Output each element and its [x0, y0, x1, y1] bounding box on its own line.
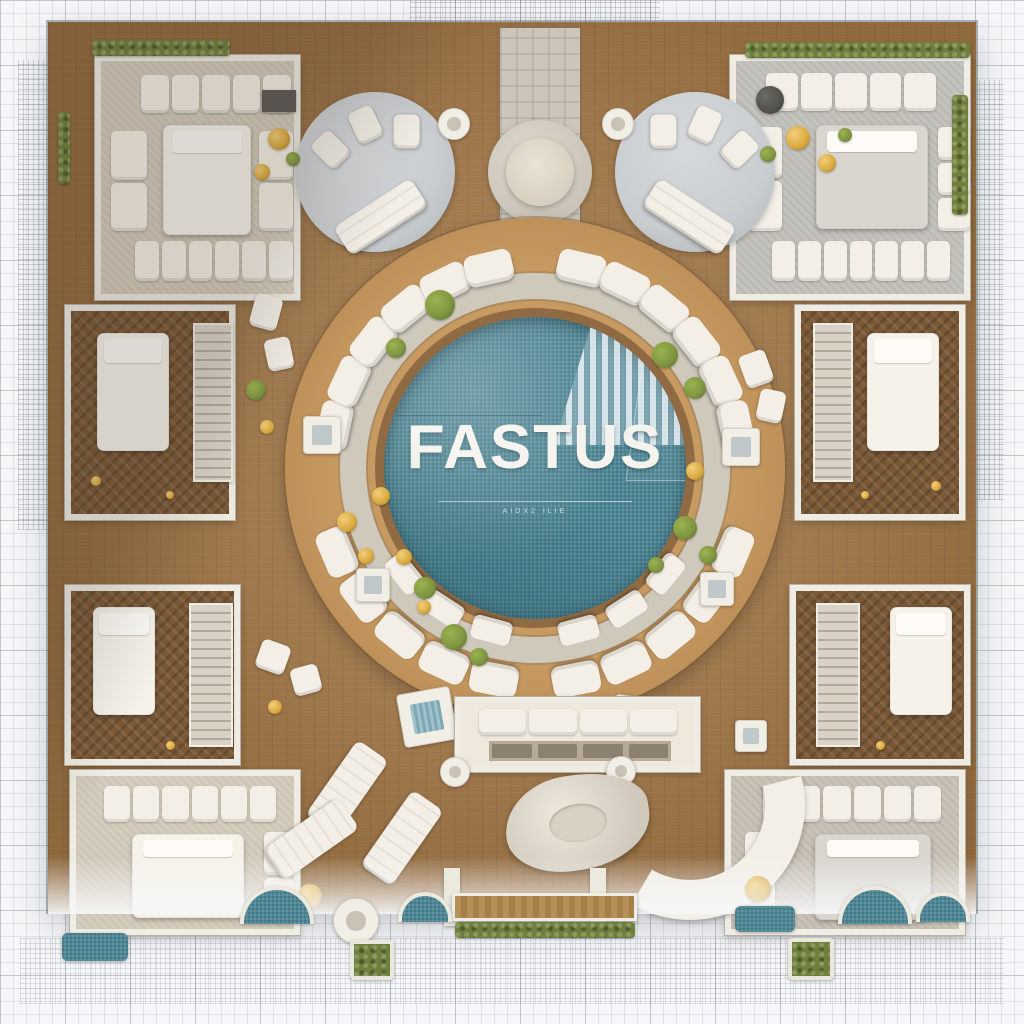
shelf-item [629, 744, 669, 758]
bed [97, 333, 169, 451]
sketch-structure-right [974, 80, 1004, 500]
gold-flowers [818, 154, 836, 172]
shrub [246, 380, 266, 400]
bed [816, 125, 928, 229]
sofa-row [104, 786, 276, 822]
round-stone-disc [333, 898, 379, 944]
console-shelf [489, 741, 671, 761]
sofa-cushion [798, 241, 821, 281]
sketch-structure-left [18, 60, 50, 530]
armchair [259, 183, 293, 232]
sofa-cushion [162, 241, 186, 281]
sofa-cushion [233, 75, 261, 113]
sofa-cushion [772, 241, 795, 281]
lamp-glow [861, 491, 869, 499]
hedge-row [455, 922, 635, 938]
shelf-item [492, 744, 532, 758]
side-table-square [700, 572, 734, 606]
plank-bridge [452, 893, 637, 921]
shrub [286, 152, 300, 166]
table-top [615, 765, 627, 777]
bedroom-bottom-left [65, 585, 240, 765]
shrub [470, 648, 488, 666]
gold-planter [268, 700, 282, 714]
sofa-cushion [189, 241, 213, 281]
gold-plate [358, 548, 374, 564]
shelf-item [538, 744, 578, 758]
wardrobe-shelving [813, 323, 853, 482]
sofa-cushion [215, 241, 239, 281]
shrub [648, 557, 664, 573]
bedroom-left [65, 305, 235, 520]
gold-plate [372, 487, 390, 505]
sofa-cushion [850, 241, 873, 281]
disc-center [346, 911, 365, 930]
bed [132, 834, 244, 918]
hedge-row [58, 112, 70, 184]
hedge-row [92, 40, 230, 56]
sofa-cushion [133, 786, 159, 822]
sketch-structure-bottom [20, 938, 1004, 1004]
gold-flowers [786, 126, 810, 150]
shrub [684, 377, 706, 399]
spa-pool-patch [735, 906, 795, 932]
table-top [743, 728, 760, 745]
side-table-square [356, 568, 390, 602]
sofa-cushion [835, 73, 867, 111]
daybed [163, 125, 251, 235]
side-table-square [735, 720, 767, 752]
lounge-chair [347, 104, 385, 146]
sofa-cushion [135, 241, 159, 281]
bed [93, 607, 155, 715]
sofa-cushion [870, 73, 902, 111]
sofa-cushion [854, 786, 881, 822]
lounge-chair [686, 104, 724, 146]
sofa-row [772, 241, 950, 281]
side-table-square [722, 428, 760, 466]
pillow [104, 339, 162, 363]
sofa-row [766, 73, 936, 111]
water-highlight [384, 317, 686, 619]
round-table-top [506, 138, 574, 206]
wardrobe-shelving [193, 323, 233, 482]
gold-flowers [745, 876, 771, 902]
sofa-cushion [479, 709, 526, 735]
dark-side-table [756, 86, 784, 114]
tilted-glass-table [396, 686, 459, 749]
gold-flowers [254, 164, 270, 180]
shrub [673, 516, 697, 540]
hedge-row [745, 42, 970, 58]
wardrobe-shelving [816, 603, 860, 747]
gold-planter [260, 420, 274, 434]
shrub [838, 128, 852, 142]
sofa-cushion [801, 73, 833, 111]
side-table [602, 108, 634, 140]
sofa-cushion [269, 241, 293, 281]
side-table [438, 108, 470, 140]
lamp-glow [876, 741, 885, 750]
spa-pool-patch [62, 933, 128, 961]
pillow [827, 840, 920, 857]
lounge-chair [650, 114, 676, 148]
bed [890, 607, 952, 715]
pillow [874, 339, 932, 363]
side-table [440, 757, 470, 787]
planter-box [350, 940, 394, 980]
dark-console [262, 90, 296, 112]
gold-plate [337, 512, 357, 532]
shrub [760, 146, 776, 162]
sofa-cushion [221, 786, 247, 822]
glass-top [410, 700, 444, 734]
pillow [896, 613, 946, 635]
sofa-cushion [141, 75, 169, 113]
gold-plate [417, 600, 431, 614]
table-top [364, 576, 382, 594]
shrub [414, 577, 436, 599]
table-top [731, 437, 751, 457]
sofa-cushion [529, 709, 576, 735]
gold-flowers [268, 128, 290, 150]
lounge-chair [394, 114, 420, 148]
sofa-cushion [901, 241, 924, 281]
sofa-cushion [104, 786, 130, 822]
table-top [611, 117, 624, 130]
lounge-chair [310, 128, 352, 170]
table-top [447, 117, 460, 130]
pillow [172, 131, 242, 153]
planter-box [788, 938, 834, 980]
hedge-row [952, 95, 968, 215]
pillow [99, 613, 149, 635]
sofa-cushion [202, 75, 230, 113]
shrub [425, 290, 455, 320]
shrub [441, 624, 467, 650]
bedroom-bottom-right [790, 585, 970, 765]
media-console [455, 697, 700, 772]
lounge-chair [718, 128, 760, 170]
console-cushions [479, 709, 677, 735]
sofa-cushion [904, 73, 936, 111]
side-table-square [303, 416, 341, 454]
sofa-cushion [875, 241, 898, 281]
sofa-cushion [162, 786, 188, 822]
sofa-cushion [172, 75, 200, 113]
sofa-cushion [580, 709, 627, 735]
shrub [386, 338, 406, 358]
bedroom-right [795, 305, 965, 520]
table-top [708, 580, 726, 598]
shrub [699, 546, 717, 564]
lamp-glow [91, 476, 101, 486]
sculpture-swirl [546, 800, 609, 846]
lamp-glow [166, 741, 175, 750]
shrub [652, 342, 678, 368]
sofa-cushion [192, 786, 218, 822]
sofa-cushion [242, 241, 266, 281]
pillow [143, 840, 233, 857]
sofa-cushion [824, 241, 847, 281]
sofa-cushion [914, 786, 941, 822]
floorplan-canvas: FASTUS AIDX2 ILIE [0, 0, 1024, 1024]
sofa-cushion [823, 786, 850, 822]
gold-planter [686, 462, 704, 480]
table-top [312, 425, 332, 445]
table-top [449, 766, 461, 778]
gold-plate [396, 549, 412, 565]
sofa-cushion [250, 786, 276, 822]
bed [867, 333, 939, 451]
sofa-cushion [630, 709, 677, 735]
sofa-cushion [927, 241, 950, 281]
lamp-glow [166, 491, 174, 499]
lamp-glow [931, 481, 941, 491]
wardrobe-shelving [189, 603, 233, 747]
sofa-row [135, 241, 293, 281]
sofa-cushion [884, 786, 911, 822]
